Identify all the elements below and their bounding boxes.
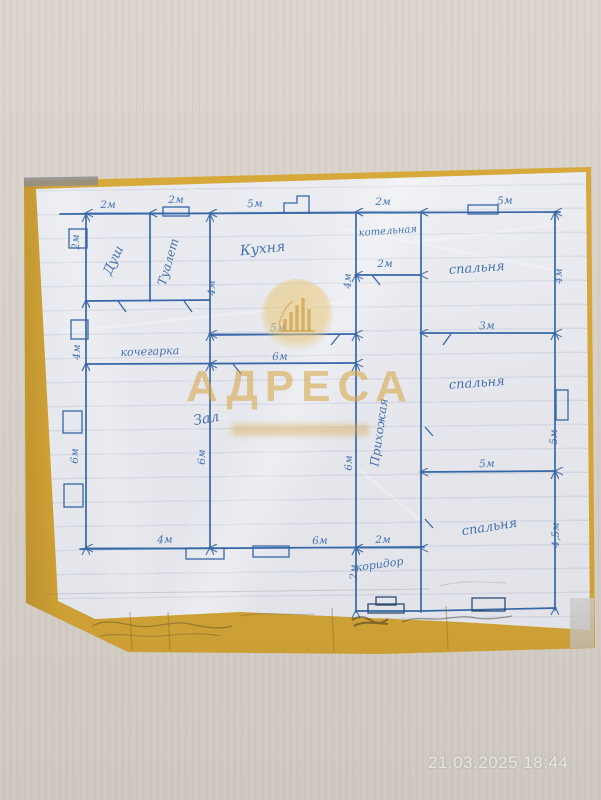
room-label-koridor: коридор bbox=[355, 555, 404, 575]
dim-label: 4м bbox=[156, 534, 173, 547]
dim-label: 6м bbox=[343, 455, 355, 470]
dim-label: 3м bbox=[479, 320, 495, 333]
dim-label: 4м bbox=[553, 268, 565, 284]
dim-label: 2м bbox=[99, 199, 115, 211]
room-label-dush: Душ bbox=[100, 244, 127, 279]
dim-label: 5м bbox=[548, 429, 560, 444]
dim-label: 2м bbox=[70, 234, 82, 250]
dim-label: 4,5м bbox=[550, 522, 562, 548]
dim-label: 4м bbox=[71, 344, 83, 360]
dim-label: 4м bbox=[342, 273, 354, 289]
room-label-kochegarka: кочегарка bbox=[120, 344, 179, 359]
room-label-tualet: Туалет bbox=[155, 237, 182, 287]
room-label-spalnya-3: спальня bbox=[461, 516, 519, 540]
building-bars-icon bbox=[261, 279, 333, 351]
dim-label: 6м bbox=[312, 535, 328, 548]
room-label-kotelnaya: котельная bbox=[358, 224, 417, 239]
dim-label: 2м bbox=[374, 534, 390, 546]
dim-label: 2м bbox=[374, 196, 390, 208]
dim-label: 5м bbox=[479, 458, 495, 471]
room-label-spalnya-1: спальня bbox=[448, 259, 505, 278]
room-label-spalnya-2: спальня bbox=[448, 374, 505, 393]
dim-label: 5м bbox=[497, 195, 513, 208]
watermark-subtitle-blurred bbox=[231, 424, 369, 436]
room-label-kuhnya: Кухня bbox=[238, 239, 286, 260]
dim-label: 4м bbox=[206, 280, 218, 296]
photo-timestamp: 21.03.2025 18:44 bbox=[428, 753, 588, 773]
dim-label: 2м bbox=[348, 564, 360, 580]
dim-label: 2м bbox=[376, 258, 392, 270]
watermark-brand-text: АДРЕСА bbox=[178, 362, 422, 412]
photo-of-floor-plan: ДушТуалетКухнякотельнаяспальняспальняспа… bbox=[0, 0, 601, 800]
dim-label: 2м bbox=[167, 194, 183, 206]
dim-label: 6м bbox=[69, 448, 81, 463]
dim-label: 6м bbox=[196, 449, 208, 464]
dim-label: 5м bbox=[247, 198, 263, 211]
watermark-logo-circle bbox=[261, 279, 333, 351]
pencil-scribbles bbox=[45, 582, 512, 652]
